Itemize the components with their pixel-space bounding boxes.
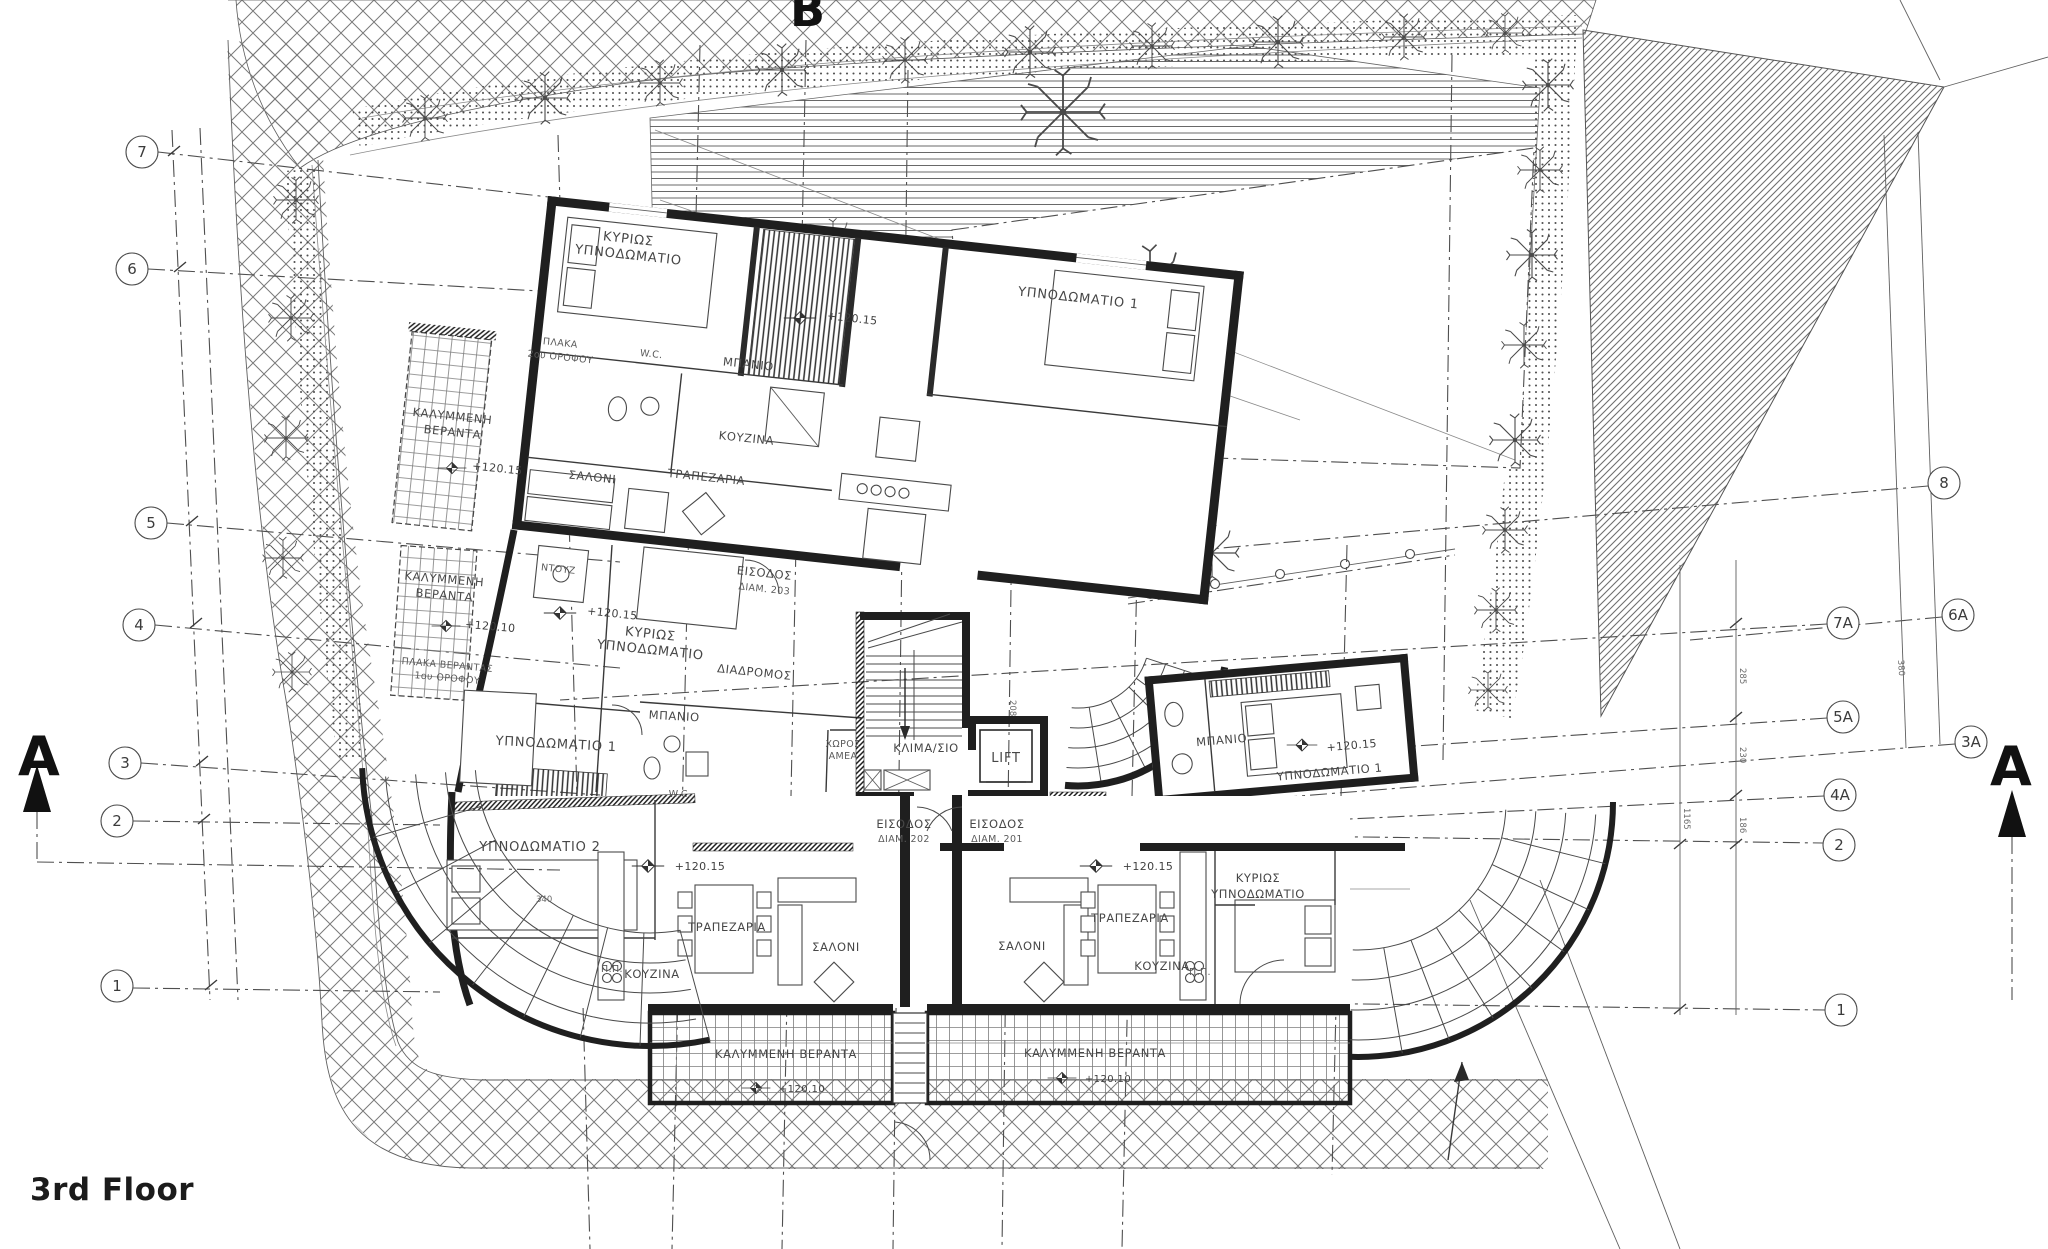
bubble-8: 8 (1928, 467, 1960, 499)
label-level-ver202: +120.10 (779, 1084, 825, 1095)
bubble-4: 4 (123, 609, 155, 641)
label-entry-203-apt: ΔΙΑΜ. 203 (738, 581, 791, 597)
section-a-right: A (1990, 735, 2032, 798)
label-entry-201-apt: ΔΙΑΜ. 201 (971, 834, 1023, 845)
bubble-3: 3 (109, 747, 141, 779)
label-veranda-202: ΚΑΛΥΜΜΕΝΗ ΒΕΡΑΝΤΑ (715, 1047, 857, 1061)
bubble-6: 6 (116, 253, 148, 285)
bubble-7: 7 (126, 136, 158, 168)
label-level-ver201: +120.10 (1085, 1074, 1131, 1085)
bubble-5A: 5A (1827, 701, 1859, 733)
bubble-1-right: 1 (1825, 994, 1857, 1026)
label-level-veranda2: +120.10 (465, 618, 516, 635)
label-bedroom2-202: ΥΠΝΟΔΩΜΑΤΙΟ 2 (478, 840, 600, 855)
label-wc-202: W.C. (669, 789, 692, 800)
label-master-201-l1: ΚΥΡΙΩΣ (1236, 871, 1281, 885)
dim-380: 380 (1895, 660, 1906, 677)
label-level-202b: +120.15 (675, 860, 726, 873)
bubble-7A: 7A (1827, 607, 1859, 639)
label-pp-201: Π.Π. (1189, 967, 1211, 978)
label-bath-202: ΜΠΑΝΙΟ (648, 708, 700, 725)
bubble-5: 5 (135, 507, 167, 539)
label-amea-l2: ΑΜΕΑ (829, 751, 858, 762)
bubble-2-right: 2 (1823, 829, 1855, 861)
svg-text:1: 1 (112, 977, 122, 995)
svg-text:7: 7 (137, 143, 147, 161)
svg-text:3: 3 (120, 754, 130, 772)
label-entry-201: ΕΙΣΟΔΟΣ (969, 817, 1024, 831)
label-dining-201: ΤΡΑΠΕΖΑΡΙΑ (1090, 911, 1169, 925)
floor-plan-sheet: 1165 285 230 186 380 340 208 7 6 5 4 3 2… (0, 0, 2048, 1249)
svg-text:3A: 3A (1961, 733, 1982, 751)
svg-text:7A: 7A (1833, 614, 1854, 632)
label-veranda-201: ΚΑΛΥΜΜΕΝΗ ΒΕΡΑΝΤΑ (1024, 1046, 1166, 1060)
label-lift: LIFT (991, 751, 1020, 766)
label-entry-202: ΕΙΣΟΔΟΣ (876, 817, 931, 831)
svg-text:5A: 5A (1833, 708, 1854, 726)
dim-1165: 1165 (1681, 808, 1691, 830)
svg-text:2: 2 (112, 812, 122, 830)
svg-text:2: 2 (1834, 836, 1844, 854)
label-level-202: +120.15 (587, 604, 639, 622)
label-corridor: ΔΙΑΔΡΟΜΟΣ (717, 661, 793, 683)
bubble-2-left: 2 (101, 805, 133, 837)
dim-340: 340 (536, 895, 552, 905)
svg-text:6A: 6A (1948, 606, 1969, 624)
label-level-veranda1: +120.15 (472, 459, 524, 477)
label-kitchen-201: ΚΟΥΖΙΝΑ (1134, 959, 1190, 973)
label-living-202: ΣΑΛΟΝΙ (812, 940, 860, 954)
bubble-6A: 6A (1942, 599, 1974, 631)
svg-text:4A: 4A (1830, 786, 1851, 804)
label-amea-l1: ΧΩΡΟΣ (826, 739, 861, 750)
svg-text:6: 6 (127, 260, 137, 278)
neighbor-plot-wedge (1583, 30, 1944, 716)
label-master-201-l2: ΥΠΝΟΔΩΜΑΤΙΟ (1210, 887, 1305, 901)
svg-text:1: 1 (1836, 1001, 1846, 1019)
bubble-1-left: 1 (101, 970, 133, 1002)
svg-text:5: 5 (146, 514, 156, 532)
bubble-3A: 3A (1955, 726, 1987, 758)
label-dining-202: ΤΡΑΠΕΖΑΡΙΑ (687, 920, 766, 934)
dim-186: 186 (1737, 817, 1747, 833)
label-stairwell: ΚΛΙΜΑ/ΣΙΟ (893, 741, 959, 755)
svg-text:4: 4 (134, 616, 144, 634)
label-entry-203: ΕΙΣΟΔΟΣ (736, 563, 793, 583)
dim-208: 208 (1007, 700, 1017, 716)
apartment-202-upper (458, 530, 862, 816)
label-living-201: ΣΑΛΟΝΙ (998, 939, 1046, 953)
label-kitchen-202: ΚΟΥΖΙΝΑ (624, 967, 680, 981)
dim-285: 285 (1737, 668, 1747, 684)
label-wc-203: W.C. (639, 348, 663, 361)
bubble-4A: 4A (1824, 779, 1856, 811)
label-entry-202-apt: ΔΙΑΜ. 202 (878, 834, 930, 845)
floor-plan-drawing: 1165 285 230 186 380 340 208 7 6 5 4 3 2… (0, 0, 2048, 1249)
label-pp-202: Π.Π. (601, 964, 623, 975)
section-b-top: B (790, 0, 825, 37)
label-level-201: +120.15 (1123, 860, 1174, 873)
sheet-title: 3rd Floor (30, 1172, 194, 1208)
svg-text:8: 8 (1939, 474, 1949, 492)
dim-230: 230 (1737, 747, 1747, 763)
